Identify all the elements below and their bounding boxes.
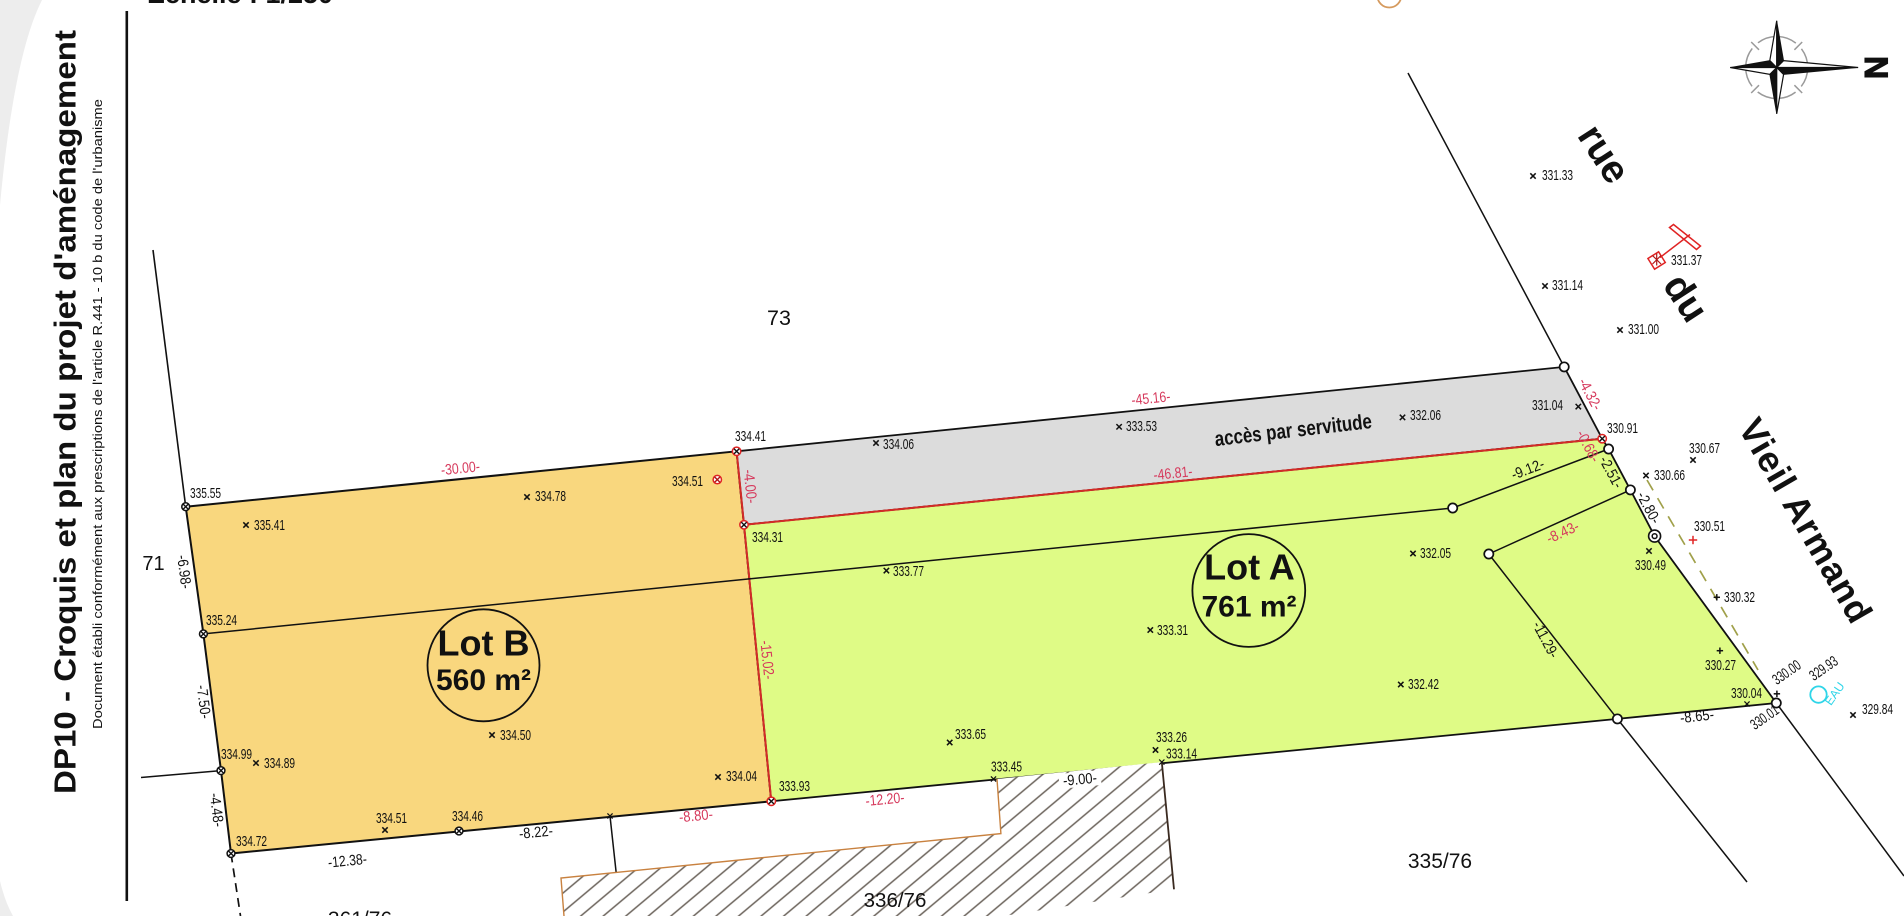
svg-text:330.67: 330.67 <box>1689 440 1720 457</box>
svg-text:330.91: 330.91 <box>1607 420 1638 437</box>
svg-text:334.89: 334.89 <box>264 755 295 772</box>
svg-text:332.05: 332.05 <box>1420 545 1451 562</box>
svg-text:330.32: 330.32 <box>1724 589 1755 606</box>
svg-text:333.31: 333.31 <box>1157 622 1188 639</box>
svg-text:334.78: 334.78 <box>535 488 566 505</box>
svg-text:Echelle : 1/250: Echelle : 1/250 <box>147 0 333 9</box>
svg-text:Lot A: Lot A <box>1204 547 1295 588</box>
svg-text:DP10 - Croquis et plan du proj: DP10 - Croquis et plan du projet d'aména… <box>48 30 83 794</box>
svg-text:-8.22-: -8.22- <box>518 823 553 843</box>
svg-text:334.50: 334.50 <box>500 727 531 744</box>
svg-text:329.84: 329.84 <box>1862 701 1893 718</box>
svg-text:330.27: 330.27 <box>1705 657 1736 674</box>
svg-text:334.72: 334.72 <box>236 833 267 850</box>
svg-text:336/76: 336/76 <box>864 889 927 912</box>
svg-text:330.66: 330.66 <box>1654 467 1685 484</box>
svg-text:560 m²: 560 m² <box>436 664 531 697</box>
svg-text:333.93: 333.93 <box>779 778 810 795</box>
svg-text:330.51: 330.51 <box>1694 518 1725 535</box>
svg-text:333.77: 333.77 <box>893 563 924 580</box>
svg-text:Document établi conformément a: Document établi conformément aux prescri… <box>90 99 105 729</box>
svg-text:-9.00-: -9.00- <box>1062 770 1097 790</box>
svg-text:334.31: 334.31 <box>752 529 783 546</box>
svg-text:330.04: 330.04 <box>1731 685 1762 702</box>
svg-text:761 m²: 761 m² <box>1201 590 1296 623</box>
svg-text:335.24: 335.24 <box>206 612 237 629</box>
svg-text:331.33: 331.33 <box>1542 167 1573 184</box>
svg-text:333.53: 333.53 <box>1126 418 1157 435</box>
svg-text:-8.80-: -8.80- <box>678 806 713 826</box>
svg-text:330.49: 330.49 <box>1635 557 1666 574</box>
svg-text:331.14: 331.14 <box>1552 277 1583 294</box>
svg-text:335.41: 335.41 <box>254 517 285 534</box>
svg-text:334.04: 334.04 <box>726 768 757 785</box>
svg-text:334.41: 334.41 <box>735 428 766 445</box>
svg-text:71: 71 <box>142 553 164 575</box>
svg-text:334.51: 334.51 <box>672 473 703 490</box>
svg-text:335/76: 335/76 <box>1408 850 1472 873</box>
svg-text:334.51: 334.51 <box>376 810 407 827</box>
svg-text:Lot B: Lot B <box>438 623 530 664</box>
svg-text:331.00: 331.00 <box>1628 321 1659 338</box>
svg-text:333.26: 333.26 <box>1156 729 1187 746</box>
svg-text:N: N <box>1858 56 1894 79</box>
svg-text:334.06: 334.06 <box>883 436 914 453</box>
svg-text:-4.00-: -4.00- <box>740 469 760 505</box>
svg-text:331.04: 331.04 <box>1532 397 1563 414</box>
svg-text:335.55: 335.55 <box>190 485 221 502</box>
svg-text:333.14: 333.14 <box>1166 746 1197 763</box>
svg-text:332.42: 332.42 <box>1408 676 1439 693</box>
svg-text:333.65: 333.65 <box>955 726 986 743</box>
svg-text:73: 73 <box>767 306 791 330</box>
svg-text:334.99: 334.99 <box>221 746 252 763</box>
svg-text:333.45: 333.45 <box>991 759 1022 776</box>
svg-text:361/76: 361/76 <box>328 908 392 916</box>
svg-text:331.37: 331.37 <box>1671 252 1702 269</box>
svg-text:332.06: 332.06 <box>1410 407 1441 424</box>
svg-text:334.46: 334.46 <box>452 808 483 825</box>
